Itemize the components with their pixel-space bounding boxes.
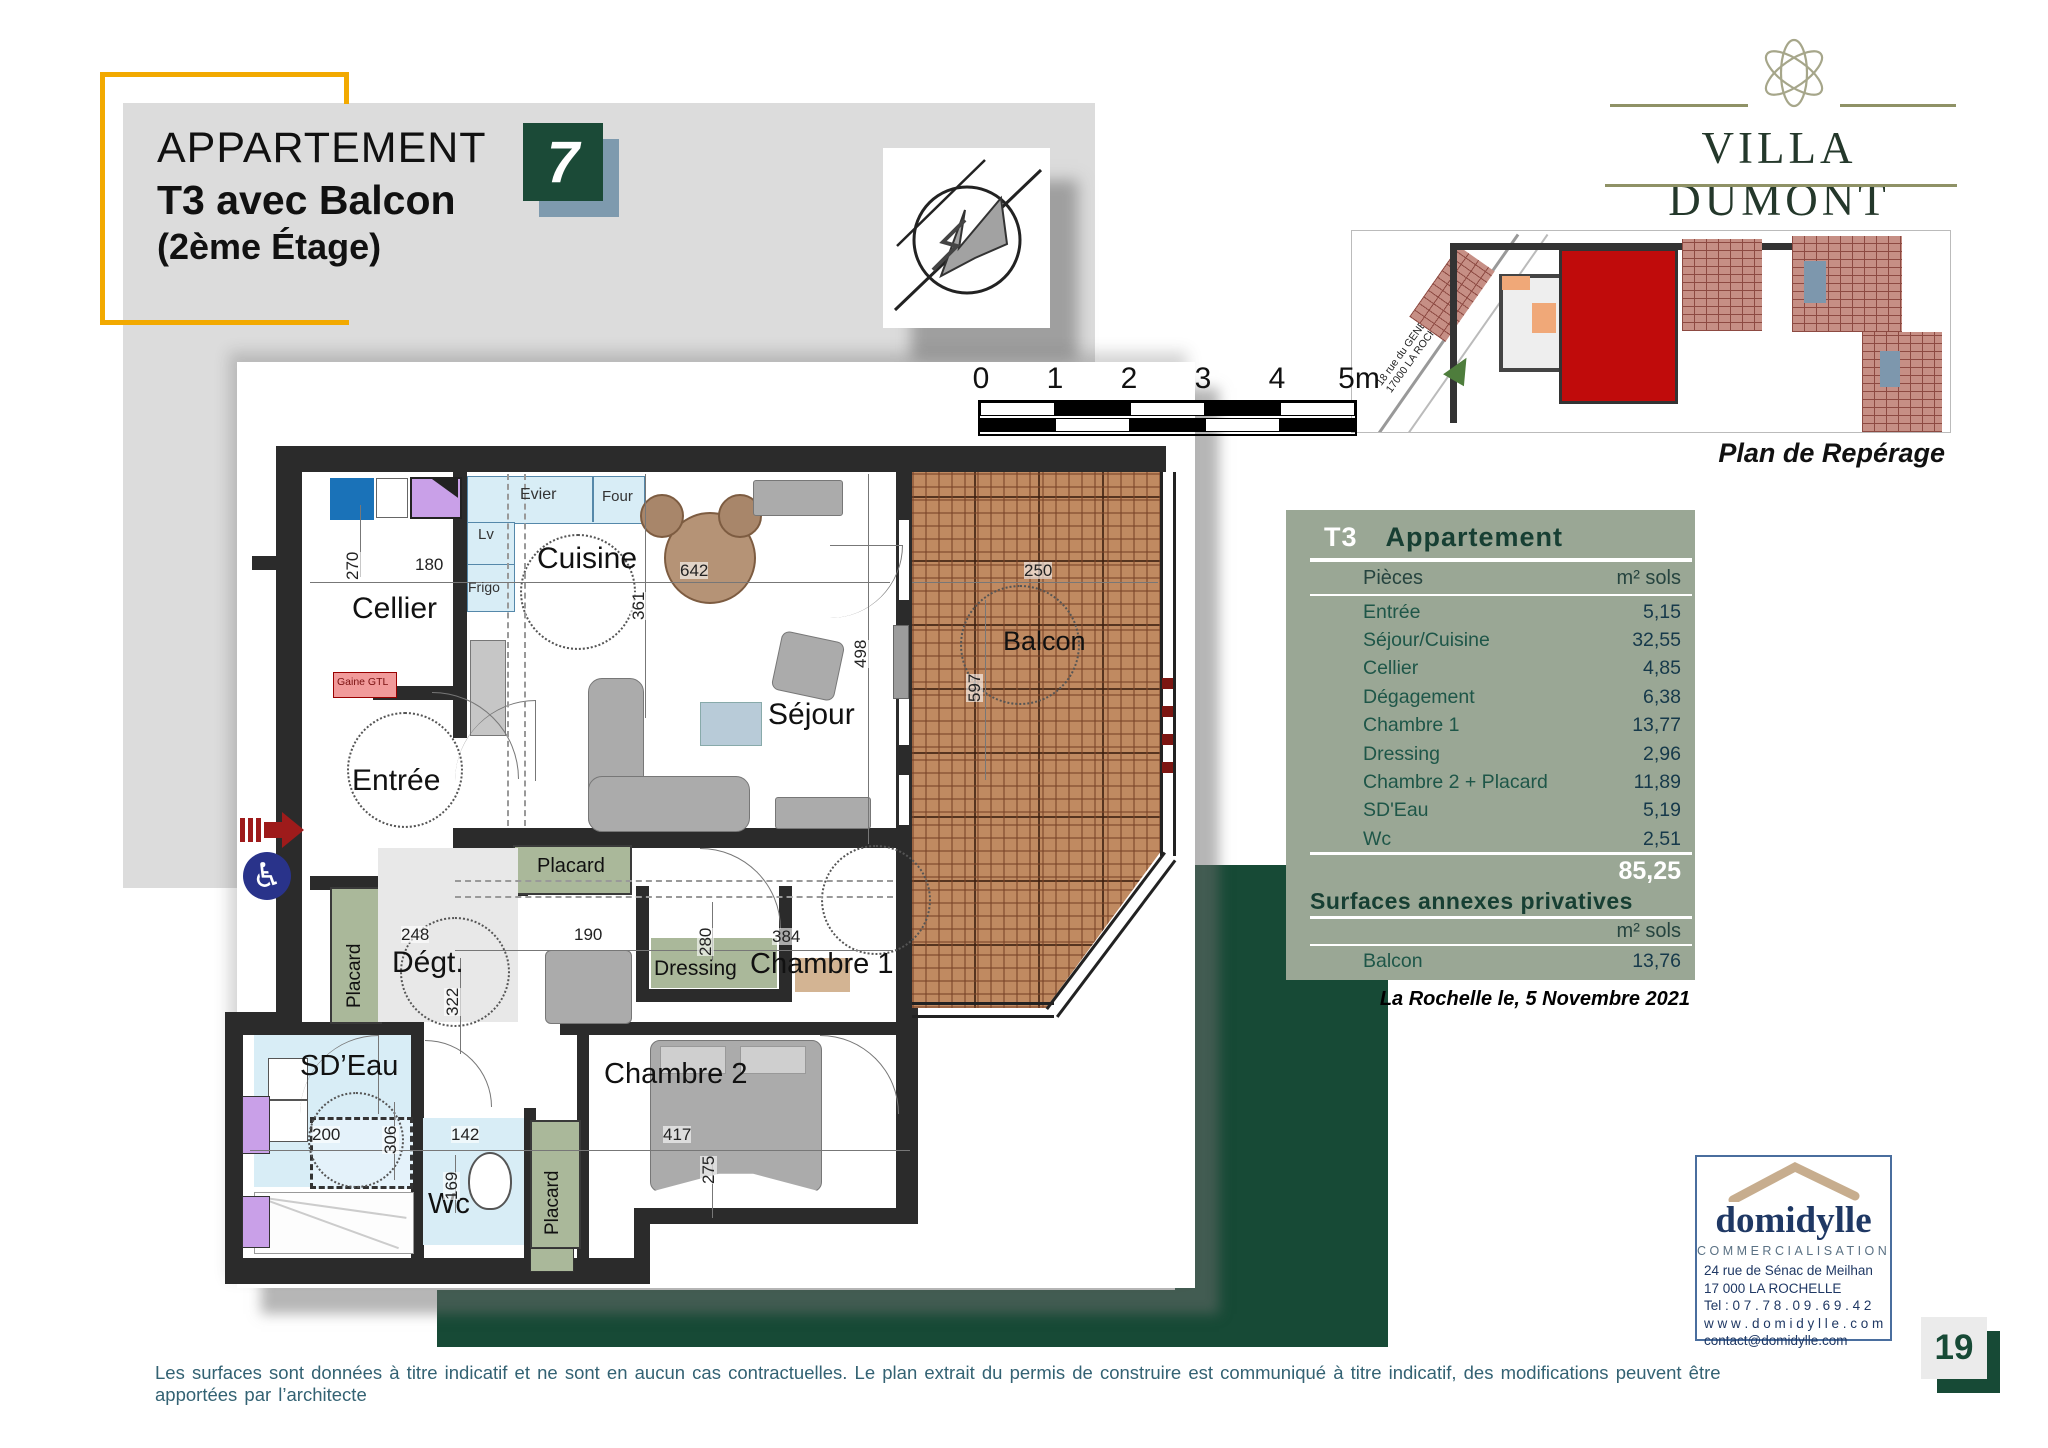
dimension-label: 642 [680,562,708,579]
counter-divider [592,476,594,522]
annex-area: 13,76 [1632,950,1681,973]
highlighted-unit [1559,248,1678,404]
balcony-rail-right [1160,472,1176,856]
mini-wall-left [1450,243,1457,423]
wall [636,989,792,1002]
north-arrow-icon [883,148,1050,328]
page-subtitle: T3 avec Balcon [157,177,487,224]
dimension-label: 384 [772,928,800,945]
logo-rule-bottom [1605,184,1957,187]
surface-table: T3Appartement Pièces m² sols Entrée5,15S… [1286,510,1695,980]
scale-bar [978,400,1357,436]
pillow [740,1046,806,1074]
cellier-blue-unit [330,478,374,520]
sideboard [753,480,843,516]
dimension-label: 142 [451,1126,479,1143]
room-name: Séjour/Cuisine [1363,629,1490,652]
tv-bench [775,797,871,829]
disclaimer: Les surfaces sont données à titre indica… [155,1362,1755,1406]
room-label: Cuisine [537,544,637,574]
roof-brick-right-3 [1862,332,1942,432]
rule [1310,944,1692,946]
balcony-attach-dot [1162,678,1173,689]
toilet [468,1152,512,1210]
armchair [770,630,845,702]
scale-tick: 1 [1047,362,1064,396]
table-row: Dressing2,96 [1363,740,1681,768]
annex-title: Surfaces annexes privatives [1310,888,1633,915]
balcony-attach-dot [1162,734,1173,745]
table-row: Chambre 113,77 [1363,712,1681,740]
agency-card: domidylle COMMERCIALISATION 24 rue de Sé… [1695,1155,1892,1341]
dimension-label: 597 [966,674,983,702]
rule [1310,852,1692,855]
wall [276,446,1166,472]
dimension-label: 417 [663,1126,691,1143]
room-name: Entrée [1363,601,1420,624]
scale-tick: 4 [1269,362,1286,396]
mini-window-2 [1880,351,1900,387]
mini-tree [1443,352,1477,387]
purple-window-1 [242,1096,270,1154]
room-area: 5,19 [1643,799,1681,822]
wall [276,446,302,1026]
table-row: Dégagement6,38 [1363,683,1681,711]
mini-window-1 [1804,261,1826,303]
room-label: Gaine GTL [337,677,388,688]
room-label: Cellier [352,594,437,624]
accent-frame-top [100,72,349,77]
dining-chair [640,494,684,538]
mini-room-orange-1 [1502,276,1530,290]
room-area: 32,55 [1632,629,1681,652]
coffee-table [700,702,762,746]
agency-contact-line: w w w . d o m i d y l l e . c o m [1704,1315,1890,1333]
dimension-label: 169 [443,1172,460,1200]
room-label: Placard [537,856,605,876]
title-block: APPARTEMENT T3 avec Balcon (2ème Étage) [157,124,487,268]
dimension-label: 190 [574,926,602,943]
agency-subtitle: COMMERCIALISATION [1697,1244,1890,1258]
balcony-attach-dot [1162,706,1173,717]
dimension-label: 498 [852,640,869,668]
slope-line [455,896,893,898]
accessibility-icon: ♿ [243,852,291,900]
scale-tick: 5m [1338,362,1380,396]
dim-line [985,600,986,780]
dim-line [700,1150,910,1151]
annex-rows: Balcon13,76 [1363,950,1681,973]
turning-circle [821,845,931,955]
table-row: SD'Eau5,19 [1363,797,1681,825]
room-label: Evier [520,487,556,503]
room-name: Wc [1363,828,1391,851]
room-area: 13,77 [1632,714,1681,737]
brochure-page: APPARTEMENT T3 avec Balcon (2ème Étage) … [0,0,2048,1448]
dim-line [310,582,890,583]
room-name: Dégagement [1363,686,1475,709]
dimension-label: 275 [700,1156,717,1184]
room-name: SD'Eau [1363,799,1429,822]
logo-rule-right [1840,104,1956,107]
floor-label: (2ème Étage) [157,226,487,268]
location-plan: 18 rue du GENERAL DUMONT 17000 LA ROCHEL… [1351,230,1951,433]
dimension-label: 280 [697,928,714,956]
room-area: 2,51 [1643,828,1681,851]
dimension-label: 250 [1024,562,1052,579]
room-area: 11,89 [1634,771,1681,794]
agency-contact: 24 rue de Sénac de Meilhan17 000 LA ROCH… [1697,1262,1890,1350]
balcony-attach-dot [1162,762,1173,773]
duct-line [524,474,526,826]
wall [225,1258,650,1284]
green-low-unit [530,1248,574,1272]
dimension-label: 361 [630,592,647,620]
scale-tick: 3 [1195,362,1212,396]
deco-green-band [437,1290,1388,1347]
room-label: Four [602,489,633,504]
dimension-label: 270 [344,552,361,580]
rule [1310,558,1692,562]
brand-name: VILLA DUMONT [1600,122,1958,226]
cellier-appliance [376,478,408,518]
agency-contact-line: contact@domidylle.com [1704,1332,1890,1350]
total-area: 85,25 [1618,857,1681,886]
table-row: Cellier4,85 [1363,655,1681,683]
room-area: 6,38 [1643,686,1681,709]
date-line: La Rochelle le, 5 Novembre 2021 [1250,988,1690,1011]
entrance-arrow-icon [240,810,304,850]
dimension-label: 200 [312,1126,340,1143]
rule [1310,916,1692,919]
roof-brick-right-1 [1682,239,1762,331]
dimension-label: 306 [382,1126,399,1154]
reperage-caption: Plan de Repérage [1545,438,1945,469]
villa-dumont-ornament-icon [1752,32,1836,114]
sofa-horizontal [588,776,750,832]
table-title: T3Appartement [1324,522,1563,553]
table-rows: Entrée5,15Séjour/Cuisine32,55Cellier4,85… [1363,598,1681,854]
annex-row: Balcon13,76 [1363,950,1681,973]
agency-name: domidylle [1697,1199,1890,1242]
wall [634,1208,918,1224]
table-row: Chambre 2 + Placard11,89 [1363,768,1681,796]
dimension-label: 248 [401,926,429,943]
col-area: m² sols [1617,567,1681,590]
slope-line [455,880,893,882]
radiator [893,625,909,699]
bed-chambre1 [545,950,632,1024]
balcony-rail-bottom [912,1002,1054,1018]
annex-name: Balcon [1363,950,1423,973]
room-label: Séjour [768,700,855,730]
room-label: Chambre 1 [750,950,893,979]
room-label: Entrée [352,766,440,796]
wall [225,1012,243,1272]
annex-col: m² sols [1617,920,1681,943]
table-row: Entrée5,15 [1363,598,1681,626]
mini-room-orange-2 [1532,303,1556,333]
dim-line [912,582,1158,583]
agency-contact-line: 17 000 LA ROCHELLE [1704,1280,1890,1298]
room-label: Frigo [468,580,500,594]
scale-tick: 0 [973,362,990,396]
table-row: Wc2,51 [1363,825,1681,853]
dimension-label: 180 [415,556,443,573]
duct-line [507,474,509,826]
room-area: 4,85 [1643,657,1681,680]
page-number: 19 [1921,1317,1987,1379]
rule [1310,594,1692,596]
scale-tick: 2 [1121,362,1138,396]
window [899,775,909,825]
table-header: Pièces m² sols [1363,567,1681,590]
logo-rule-left [1610,104,1748,107]
table-tag: T3 [1324,522,1358,552]
agency-contact-line: 24 rue de Sénac de Meilhan [1704,1262,1890,1280]
room-area: 5,15 [1643,601,1681,624]
room-name: Chambre 1 [1363,714,1459,737]
room-label: Lv [478,527,494,542]
room-name: Chambre 2 + Placard [1363,771,1548,794]
room-label: Dégt. [392,948,464,978]
room-label: Placard [345,944,364,1008]
room-name: Cellier [1363,657,1418,680]
room-name: Dressing [1363,743,1440,766]
north-arrow-card [883,148,1050,328]
purple-window-2 [242,1196,270,1248]
agency-roof-icon [1719,1160,1869,1202]
room-label: Placard [543,1171,562,1235]
unit-number-badge: 7 [523,123,603,201]
dimension-label: 322 [444,988,461,1016]
wall [252,556,276,570]
table-row: Séjour/Cuisine32,55 [1363,626,1681,654]
accent-frame-left [100,72,105,325]
accent-frame-right-stub [344,72,349,104]
room-label: Dressing [654,958,737,979]
accent-frame-bottom [100,320,349,325]
room-area: 2,96 [1643,743,1681,766]
page-title: APPARTEMENT [157,124,487,173]
agency-contact-line: Tel : 0 7 . 7 8 . 0 9 . 6 9 . 4 2 [1704,1297,1890,1315]
room-label: Balcon [1003,628,1086,655]
wall [636,886,649,1002]
col-rooms: Pièces [1363,567,1423,590]
room-label: Chambre 2 [604,1060,747,1089]
room-label: SD’Eau [300,1052,398,1081]
